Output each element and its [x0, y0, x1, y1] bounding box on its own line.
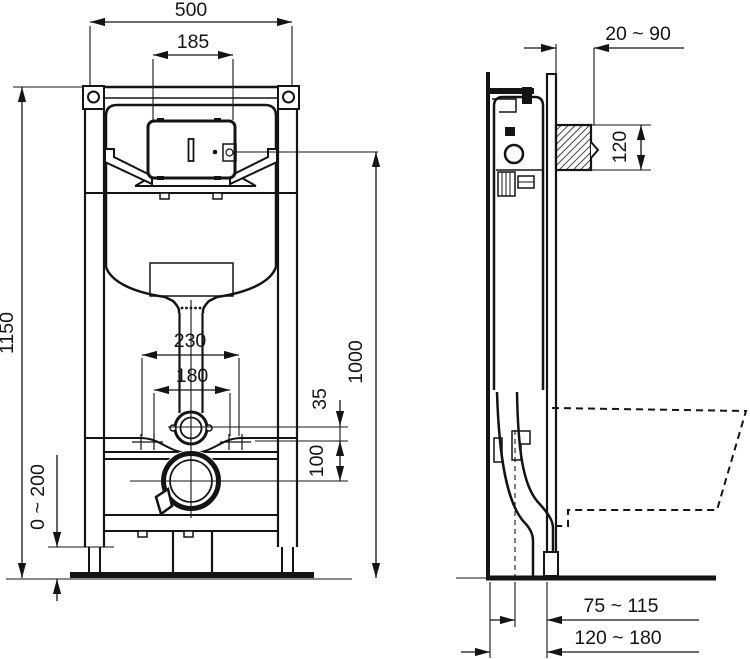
dim-fixings-to-outlet: 100 — [306, 441, 340, 481]
front-view: 500 185 1150 0 ~ 200 1000 230 — [0, 0, 378, 601]
dim-label-fixing-inner: 180 — [176, 365, 209, 387]
drain-pipe-side — [497, 392, 553, 576]
dim-installation-depth: 20 ~ 90 — [524, 23, 684, 73]
foot-side — [544, 552, 558, 576]
flush-plate-panel — [148, 118, 236, 180]
dim-label-fixing-outer: 230 — [174, 330, 207, 352]
side-view: 20 ~ 90 120 75 ~ 115 120 ~ 180 — [456, 23, 746, 658]
technical-drawing: 500 185 1150 0 ~ 200 1000 230 — [0, 0, 750, 659]
dim-label-outlet-to-wall: 120 ~ 180 — [574, 627, 661, 649]
cistern-label-plate — [150, 263, 233, 296]
dim-label-installation-depth: 20 ~ 90 — [605, 23, 671, 45]
dim-label-frame-height: 1150 — [0, 312, 18, 354]
bottom-rail — [104, 515, 278, 537]
wing-bracket-left — [105, 149, 152, 184]
dim-label-panel-opening: 185 — [177, 31, 210, 53]
actuator-block — [556, 125, 598, 170]
dim-flushpipe-to-fixings: 35 — [309, 388, 340, 441]
dim-label-outlet-to-front: 75 ~ 115 — [583, 595, 658, 617]
dim-label-actuator-opening: 120 — [609, 131, 631, 164]
dim-outlet-to-wall: 120 ~ 180 — [461, 627, 699, 652]
outlet-clip — [156, 489, 172, 514]
wing-bracket-right — [230, 149, 277, 184]
dim-actuator-opening: 120 — [592, 125, 651, 170]
dim-label-frame-width: 500 — [175, 0, 208, 21]
dim-label-fixings-to-outlet: 100 — [306, 445, 328, 478]
dim-label-actuator-height: 1000 — [345, 340, 367, 384]
dim-panel-opening: 185 — [153, 31, 233, 120]
dim-label-foot-adjustment: 0 ~ 200 — [27, 464, 49, 530]
drawing-canvas: 500 185 1150 0 ~ 200 1000 230 — [0, 0, 750, 659]
adjustable-feet — [89, 547, 293, 575]
dim-label-flushpipe-to-fixings: 35 — [309, 388, 331, 410]
wc-bowl-outline — [552, 408, 746, 526]
cistern-side — [494, 97, 543, 390]
fill-valve — [505, 145, 523, 163]
actuator-reference-point — [213, 150, 218, 155]
mounting-hole-left — [88, 92, 99, 103]
mounting-hole-right — [283, 92, 294, 103]
